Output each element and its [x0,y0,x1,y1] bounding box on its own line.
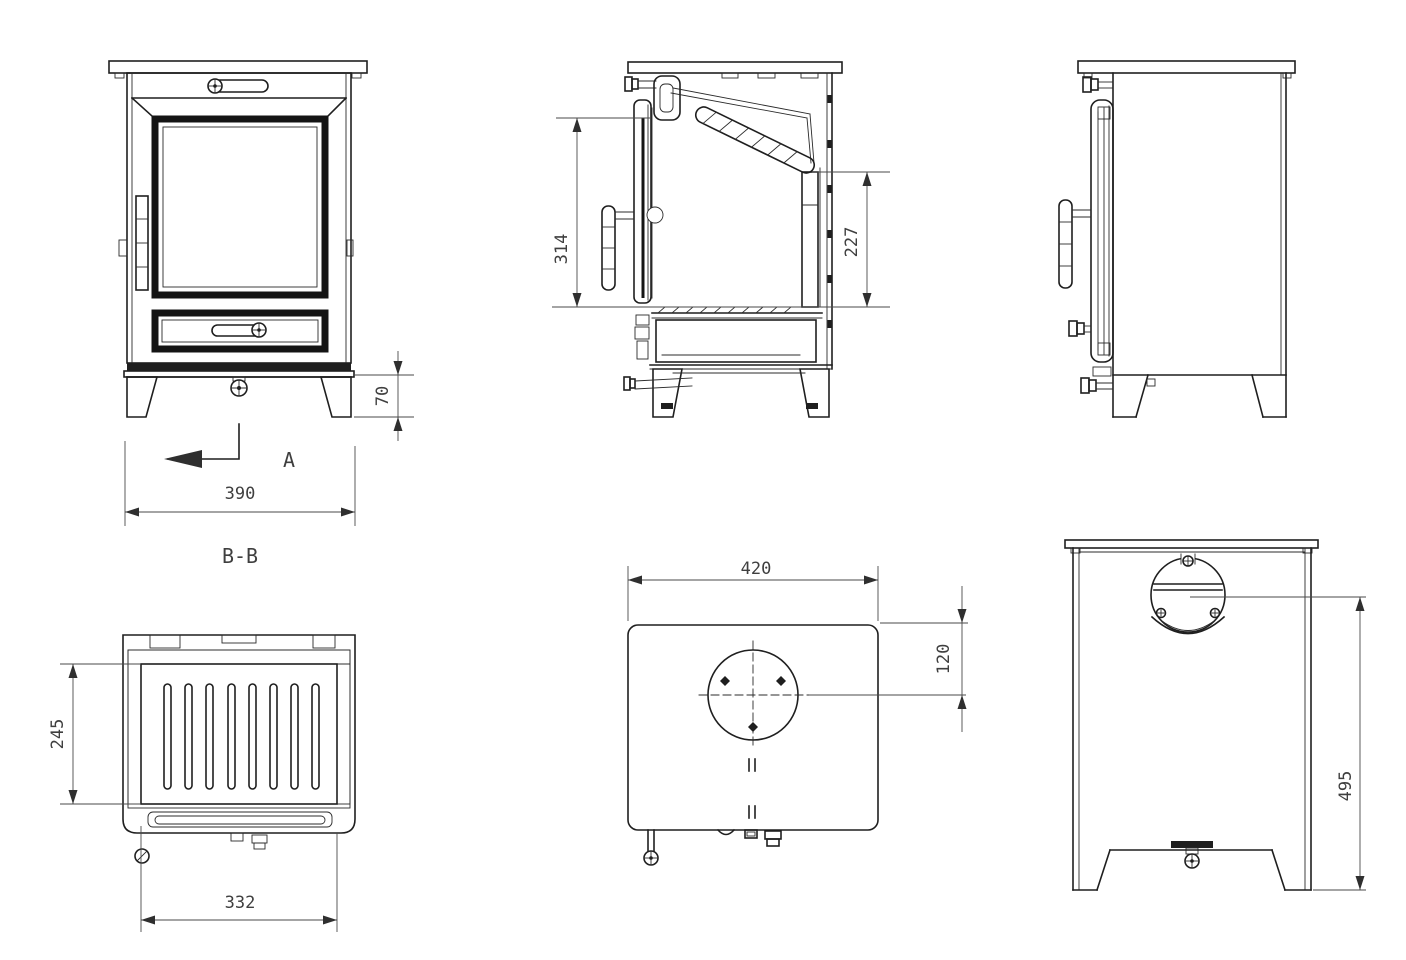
dim-text-495: 495 [1336,771,1356,802]
side-leg-front [1136,375,1148,417]
dim-text-314: 314 [552,234,572,265]
grate-slot [228,684,235,789]
dim-text-227: 227 [842,227,862,258]
side-leg-rear [1252,375,1263,417]
rear-firebrick [802,172,818,307]
side-bottom-knob [1081,378,1089,393]
grate-slot [270,684,277,789]
cutting-arrow-icon [164,450,202,468]
dim-text-420: 420 [741,559,772,579]
firebrick-left [128,664,141,804]
grate-slot [249,684,256,789]
top-view: 420 120 [628,559,968,865]
dim-front-leg-height: 70 [354,351,414,441]
flue-flap [1152,617,1224,634]
cutting-arrow-label: A [283,448,295,472]
top-plate [109,61,367,73]
base-band [127,363,351,371]
grate-slot [312,684,319,789]
dim-text-120: 120 [934,644,954,675]
flue-bolt-icon [720,676,730,686]
drawing-canvas: 70 390 A B-B [0,0,1406,960]
firebrick-right [337,664,350,804]
side-mid-knob [1069,321,1077,336]
dim-text-70: 70 [373,386,393,406]
section-label: B-B [222,544,258,568]
side-view [1059,61,1295,417]
grate-slot [164,684,171,789]
dim-text-245: 245 [48,719,68,750]
air-control-knob [625,77,632,91]
front-view: 70 390 A B-B [109,61,414,568]
grate-slot [206,684,213,789]
section-cutting-arrow: A [164,424,295,472]
dim-firebox-rear-height: 227 [812,172,890,307]
dim-firebox-depth: 245 [48,664,141,804]
glass-door [155,119,325,295]
flue-bolt-icon [748,722,758,732]
front-leg-right [321,377,351,417]
ash-lip [624,377,630,390]
dim-flue-offset: 120 [809,586,968,732]
rear-view: 495 [1065,540,1366,890]
dim-text-332: 332 [225,893,256,913]
dim-text-390: 390 [225,484,256,504]
bb-section-view: 245 332 [48,635,355,932]
stove-technical-drawing: 70 390 A B-B [0,0,1406,960]
side-top-plate [1078,61,1295,73]
side-door-edge [1091,100,1113,362]
section-leg-left [653,369,682,417]
grate-slot [291,684,298,789]
glass-pane [163,127,317,287]
rear-vent-slot [1171,841,1213,848]
front-leg-left [127,377,157,417]
ash-drawer [155,313,325,349]
side-top-knob [1083,77,1091,92]
ash-pan [656,320,816,362]
dim-top-width: 420 [628,559,878,621]
firebrick-top [128,650,350,664]
dim-front-width: 390 [125,441,355,526]
rear-top-plate [1065,540,1318,548]
section-top-plate [628,62,842,73]
bb-door-edge [148,812,332,827]
grate-slot [185,684,192,789]
flue-bolt-icon [776,676,786,686]
baffle-plate [693,104,817,175]
dim-firebox-width: 332 [141,826,337,932]
section-leg-right [800,369,829,417]
section-view: 314 227 [552,62,890,417]
door-latch-bracket [654,76,680,120]
dim-flue-height: 495 [1190,597,1366,890]
